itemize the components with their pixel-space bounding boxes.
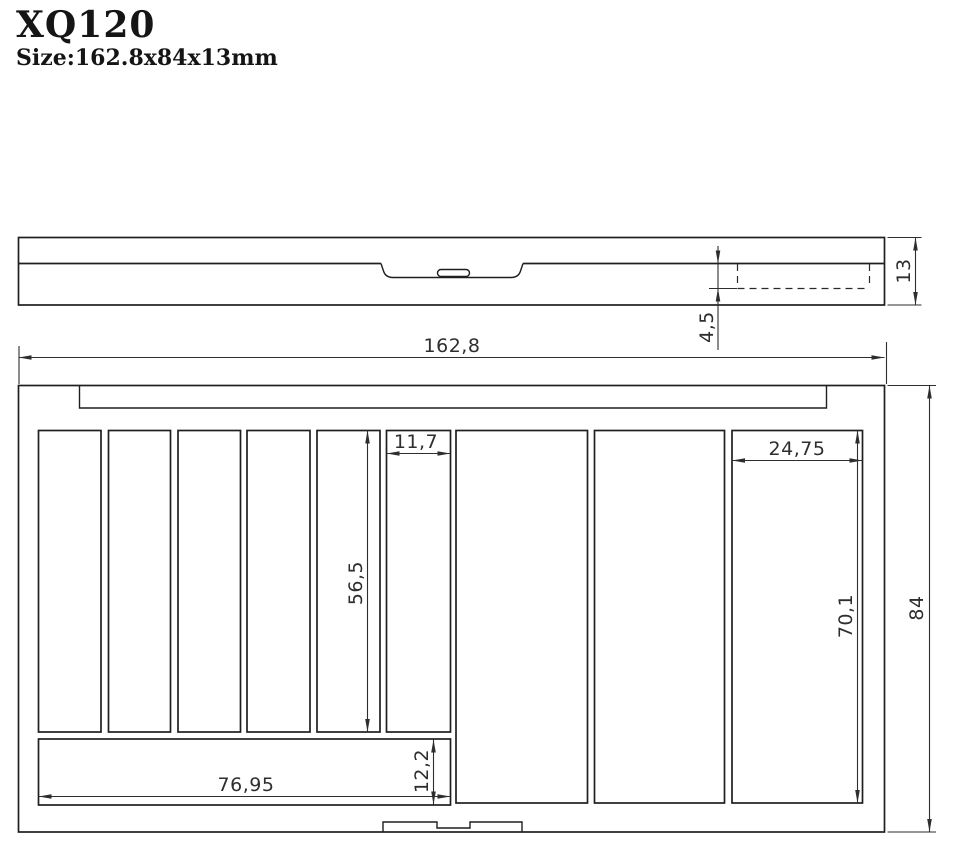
compartment-large-2	[595, 431, 725, 804]
arrowhead	[872, 355, 885, 360]
dim-right-slot-length: 70,1	[835, 431, 860, 804]
handle-recess	[381, 264, 523, 278]
arrowhead	[732, 458, 745, 463]
arrowhead	[855, 431, 860, 444]
dim-lip-depth-label: 4,5	[696, 311, 718, 343]
front-lip-step	[80, 386, 827, 409]
compartment-large-1	[456, 431, 588, 804]
side-view-body	[19, 238, 885, 306]
arrowhead	[365, 719, 370, 732]
compartment-slot-4	[247, 431, 310, 733]
arrowhead	[438, 794, 451, 799]
dim-right-slot-length-label: 70,1	[835, 594, 857, 638]
arrowhead	[438, 451, 451, 456]
plan-view-body	[19, 386, 885, 833]
arrowhead	[927, 386, 932, 399]
arrowhead	[913, 238, 918, 251]
bottom-handle-notch	[383, 822, 522, 832]
plan-view: 162,8 84 11,7 56,5	[19, 335, 937, 832]
compartments	[39, 431, 863, 806]
hidden-pocket-outline	[738, 264, 870, 289]
dim-bottom-slot-length: 76,95	[39, 774, 451, 799]
compartment-slot-1	[39, 431, 102, 733]
arrowhead	[716, 289, 721, 302]
compartment-slot-2	[109, 431, 171, 733]
drawing-sheet: { "header": { "model": "XQ120", "size_la…	[0, 0, 967, 868]
arrowhead	[365, 431, 370, 444]
arrowhead	[716, 251, 721, 264]
dim-overall-depth: 84	[888, 386, 937, 833]
dim-right-slot-width-label: 24,75	[769, 438, 826, 460]
dim-lip-depth: 4,5	[696, 246, 737, 350]
dim-thickness: 13	[888, 238, 922, 306]
compartment-slot-3	[178, 431, 241, 733]
technical-drawing: 4,5 13	[0, 0, 967, 868]
arrowhead	[19, 355, 32, 360]
dim-bottom-slot-width: 12,2	[411, 740, 436, 805]
handle-slot	[438, 270, 470, 277]
side-view: 4,5 13	[19, 238, 922, 351]
dim-slot-length: 56,5	[345, 431, 370, 733]
dim-bottom-slot-length-label: 76,95	[218, 774, 275, 796]
arrowhead	[927, 819, 932, 832]
dim-bottom-slot-width-label: 12,2	[411, 749, 433, 793]
dim-slot-width-label: 11,7	[394, 431, 438, 453]
dim-slot-length-label: 56,5	[345, 561, 367, 605]
dim-thickness-label: 13	[893, 258, 915, 283]
arrowhead	[39, 794, 52, 799]
arrowhead	[850, 458, 863, 463]
dim-overall-depth-label: 84	[906, 595, 928, 620]
compartment-slot-6	[387, 431, 451, 733]
dim-overall-width-label: 162,8	[424, 335, 481, 357]
dim-overall-width: 162,8	[19, 335, 887, 384]
dim-slot-width: 11,7	[387, 431, 451, 456]
arrowhead	[855, 790, 860, 803]
dim-right-slot-width: 24,75	[732, 438, 863, 463]
arrowhead	[913, 292, 918, 305]
